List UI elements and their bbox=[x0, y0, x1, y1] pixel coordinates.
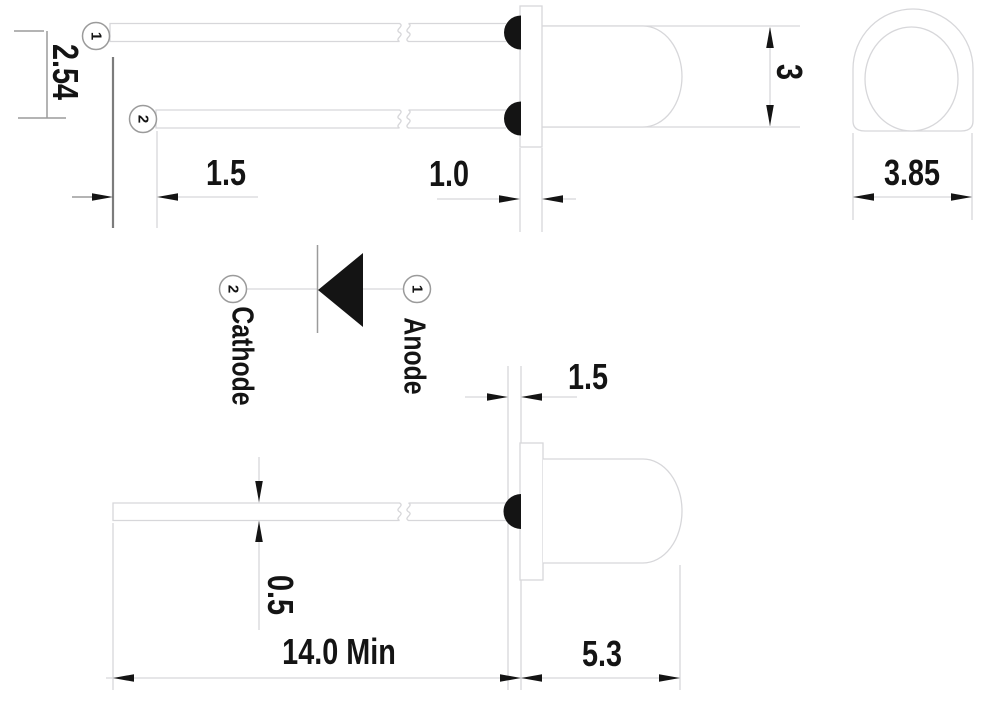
top-side-view bbox=[14, 6, 800, 232]
dim-label-flange-thickness: 1.0 bbox=[429, 156, 469, 192]
arrowhead-standoff-right bbox=[521, 393, 542, 401]
led-body-outline-bottom-view bbox=[543, 459, 682, 563]
arrowhead-lead-length-left bbox=[113, 674, 134, 682]
body-outline-front bbox=[865, 27, 958, 131]
anode-label: Anode bbox=[400, 317, 431, 394]
arrowhead-lead-offset-left bbox=[92, 193, 113, 201]
arrowhead-lead-length-right bbox=[500, 674, 521, 682]
pin2-label-top-view: 2 bbox=[136, 115, 151, 123]
arrowhead-body-length-right bbox=[659, 674, 680, 682]
lead-end-dome-bottom bbox=[504, 494, 522, 529]
pin1-label-top-view: 1 bbox=[89, 32, 104, 40]
arrowhead-lead-offset-right bbox=[157, 193, 178, 201]
arrowhead-lead-thickness-down bbox=[255, 481, 263, 502]
arrowhead-standoff-left bbox=[487, 393, 508, 401]
arrowhead-body-length-left bbox=[521, 674, 542, 682]
dim-label-body-diameter: 3 bbox=[771, 64, 807, 80]
dim-label-flange-diameter: 3.85 bbox=[884, 155, 940, 191]
dim-label-lead-length: 14.0 Min bbox=[282, 634, 396, 670]
pin1-label-schematic: 1 bbox=[410, 285, 425, 293]
drawing-canvas bbox=[0, 0, 1000, 706]
lead2-wire-right-segment bbox=[407, 110, 506, 128]
lead-wire-right-segment-bottom bbox=[407, 503, 506, 521]
schematic-diode-triangle bbox=[318, 253, 363, 327]
led-flange-bottom-view bbox=[520, 443, 543, 580]
arrowhead-body-diameter-up bbox=[766, 27, 774, 48]
dim-label-body-length: 5.3 bbox=[582, 636, 622, 672]
lead1-end-dome bbox=[504, 16, 521, 50]
lead-wire-left-segment-bottom bbox=[113, 503, 401, 521]
dim-label-tip-standoff: 1.5 bbox=[568, 359, 608, 395]
lead2-wire-left-segment bbox=[156, 110, 401, 128]
pin2-label-schematic: 2 bbox=[226, 285, 241, 293]
arrowhead-flange-left bbox=[499, 195, 520, 203]
dim-label-lead-thickness: 0.5 bbox=[262, 575, 298, 615]
arrowhead-lead-thickness-up bbox=[255, 521, 263, 542]
dim-label-lead-offset: 1.5 bbox=[206, 155, 246, 191]
lead2-end-dome bbox=[504, 102, 521, 136]
cathode-label: Cathode bbox=[228, 306, 259, 405]
arrowhead-body-diameter-down bbox=[766, 105, 774, 126]
led-flange bbox=[520, 6, 542, 147]
arrowhead-flange-dia-left bbox=[853, 193, 874, 201]
lead1-wire-right-segment bbox=[407, 24, 506, 42]
dim-label-lead-pitch: 2.54 bbox=[47, 44, 83, 100]
arrowhead-flange-dia-right bbox=[951, 193, 972, 201]
led-dimension-drawing: 2.54 1 2 1.5 1.0 3 3.85 2 1 Cathode Anod… bbox=[0, 0, 1000, 706]
arrowhead-flange-right bbox=[542, 195, 563, 203]
lead1-wire-left-segment bbox=[110, 24, 401, 42]
led-body-outline bbox=[542, 26, 682, 127]
